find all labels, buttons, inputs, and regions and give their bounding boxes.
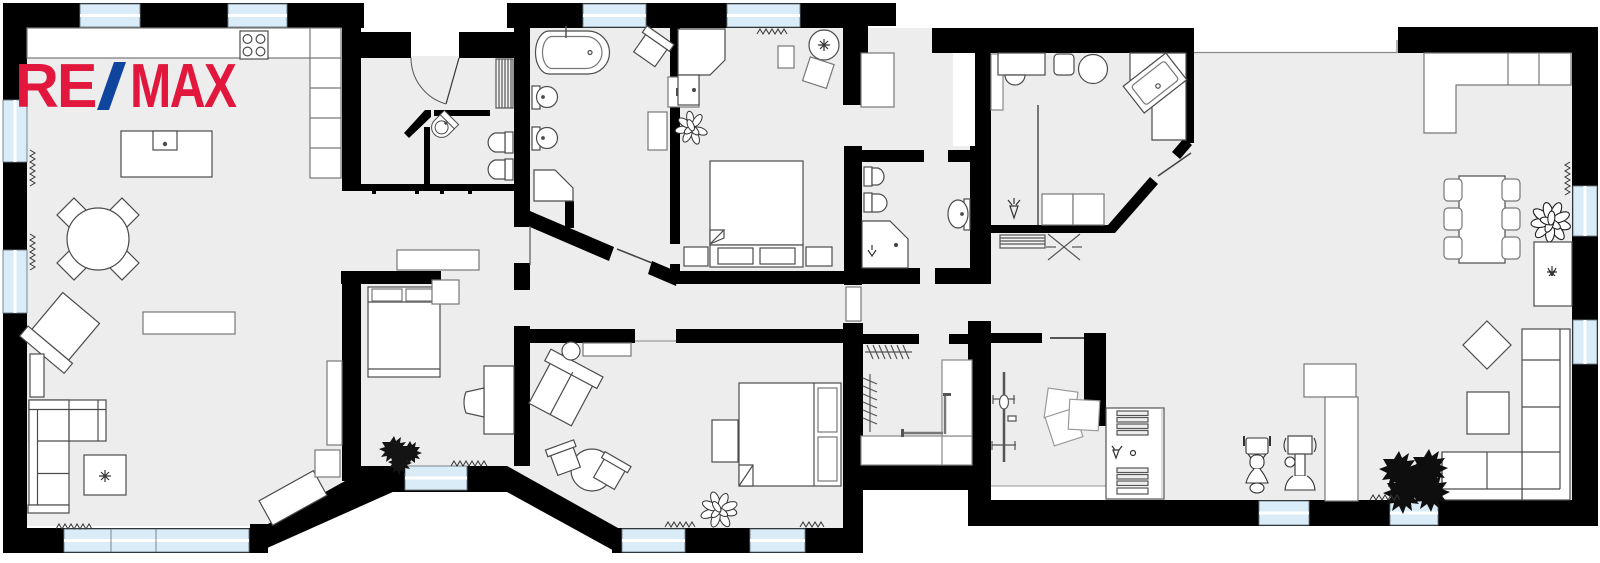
svg-text:MAX: MAX xyxy=(130,51,237,121)
svg-text:RE: RE xyxy=(15,51,96,121)
